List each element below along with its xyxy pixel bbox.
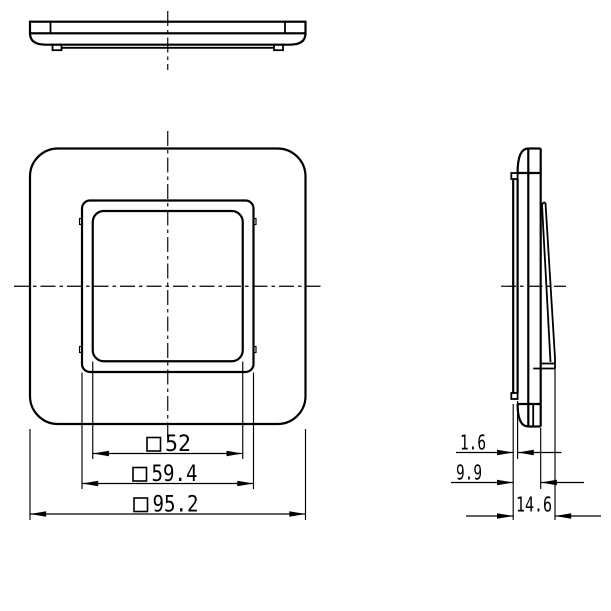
- dimension-95-2: 95.2: [30, 493, 306, 518]
- top-view-right-notch: [274, 45, 283, 51]
- arrowhead-left-pointing: [541, 480, 557, 485]
- latch-nub-right-lower: [253, 347, 256, 353]
- dimension-9-9: 9.9: [451, 461, 584, 486]
- latch-nub-right-upper: [253, 219, 256, 225]
- latch-nub-left-lower: [80, 347, 83, 353]
- dimension-text-14-6: 14.6: [516, 493, 552, 517]
- arrowhead-left: [93, 451, 109, 456]
- arrowhead-left-pointing: [518, 450, 534, 455]
- dimension-1-6: 1.6: [456, 431, 562, 456]
- top-view-left-notch: [53, 45, 62, 51]
- arrowhead-right-pointing: [497, 480, 513, 485]
- side-plate-bottom-cap: [511, 393, 517, 399]
- arrowhead-left-pointing: [555, 513, 571, 518]
- dimension-text-1-6: 1.6: [460, 431, 486, 455]
- side-plate-top-cap: [511, 173, 517, 179]
- dimension-text-52: 52: [165, 432, 191, 457]
- technical-drawing-canvas: 52 59.4 95.2 1.6: [0, 0, 611, 611]
- technical-drawing-page: 52 59.4 95.2 1.6: [0, 0, 611, 611]
- dimension-text-9-9: 9.9: [456, 461, 482, 485]
- arrowhead-left: [30, 511, 46, 516]
- dimension-text-59-4: 59.4: [152, 462, 198, 487]
- arrowhead-right: [289, 511, 305, 516]
- square-symbol-icon: [134, 498, 148, 512]
- dimension-14-6: 14.6: [466, 493, 601, 519]
- latch-nub-left-upper: [80, 219, 83, 225]
- front-view: [14, 131, 321, 442]
- front-dimensions: 52 59.4 95.2: [30, 362, 306, 521]
- square-symbol-icon: [133, 468, 147, 482]
- arrowhead-right: [227, 451, 243, 456]
- side-dimensions: 1.6 9.9 14.6: [451, 369, 601, 521]
- top-view: [30, 11, 306, 70]
- arrowhead-left: [82, 481, 98, 486]
- square-symbol-icon: [147, 438, 161, 452]
- side-top-corner-arc: [518, 149, 529, 174]
- side-view: [501, 149, 566, 427]
- dimension-59-4: 59.4: [82, 462, 254, 487]
- arrowhead-right: [237, 481, 253, 486]
- arrowhead-right-pointing: [497, 450, 513, 455]
- dimension-text-95-2: 95.2: [153, 493, 199, 518]
- dimension-52: 52: [93, 432, 243, 457]
- side-bottom-corner-arc: [518, 404, 529, 427]
- arrowhead-right-pointing: [497, 513, 513, 518]
